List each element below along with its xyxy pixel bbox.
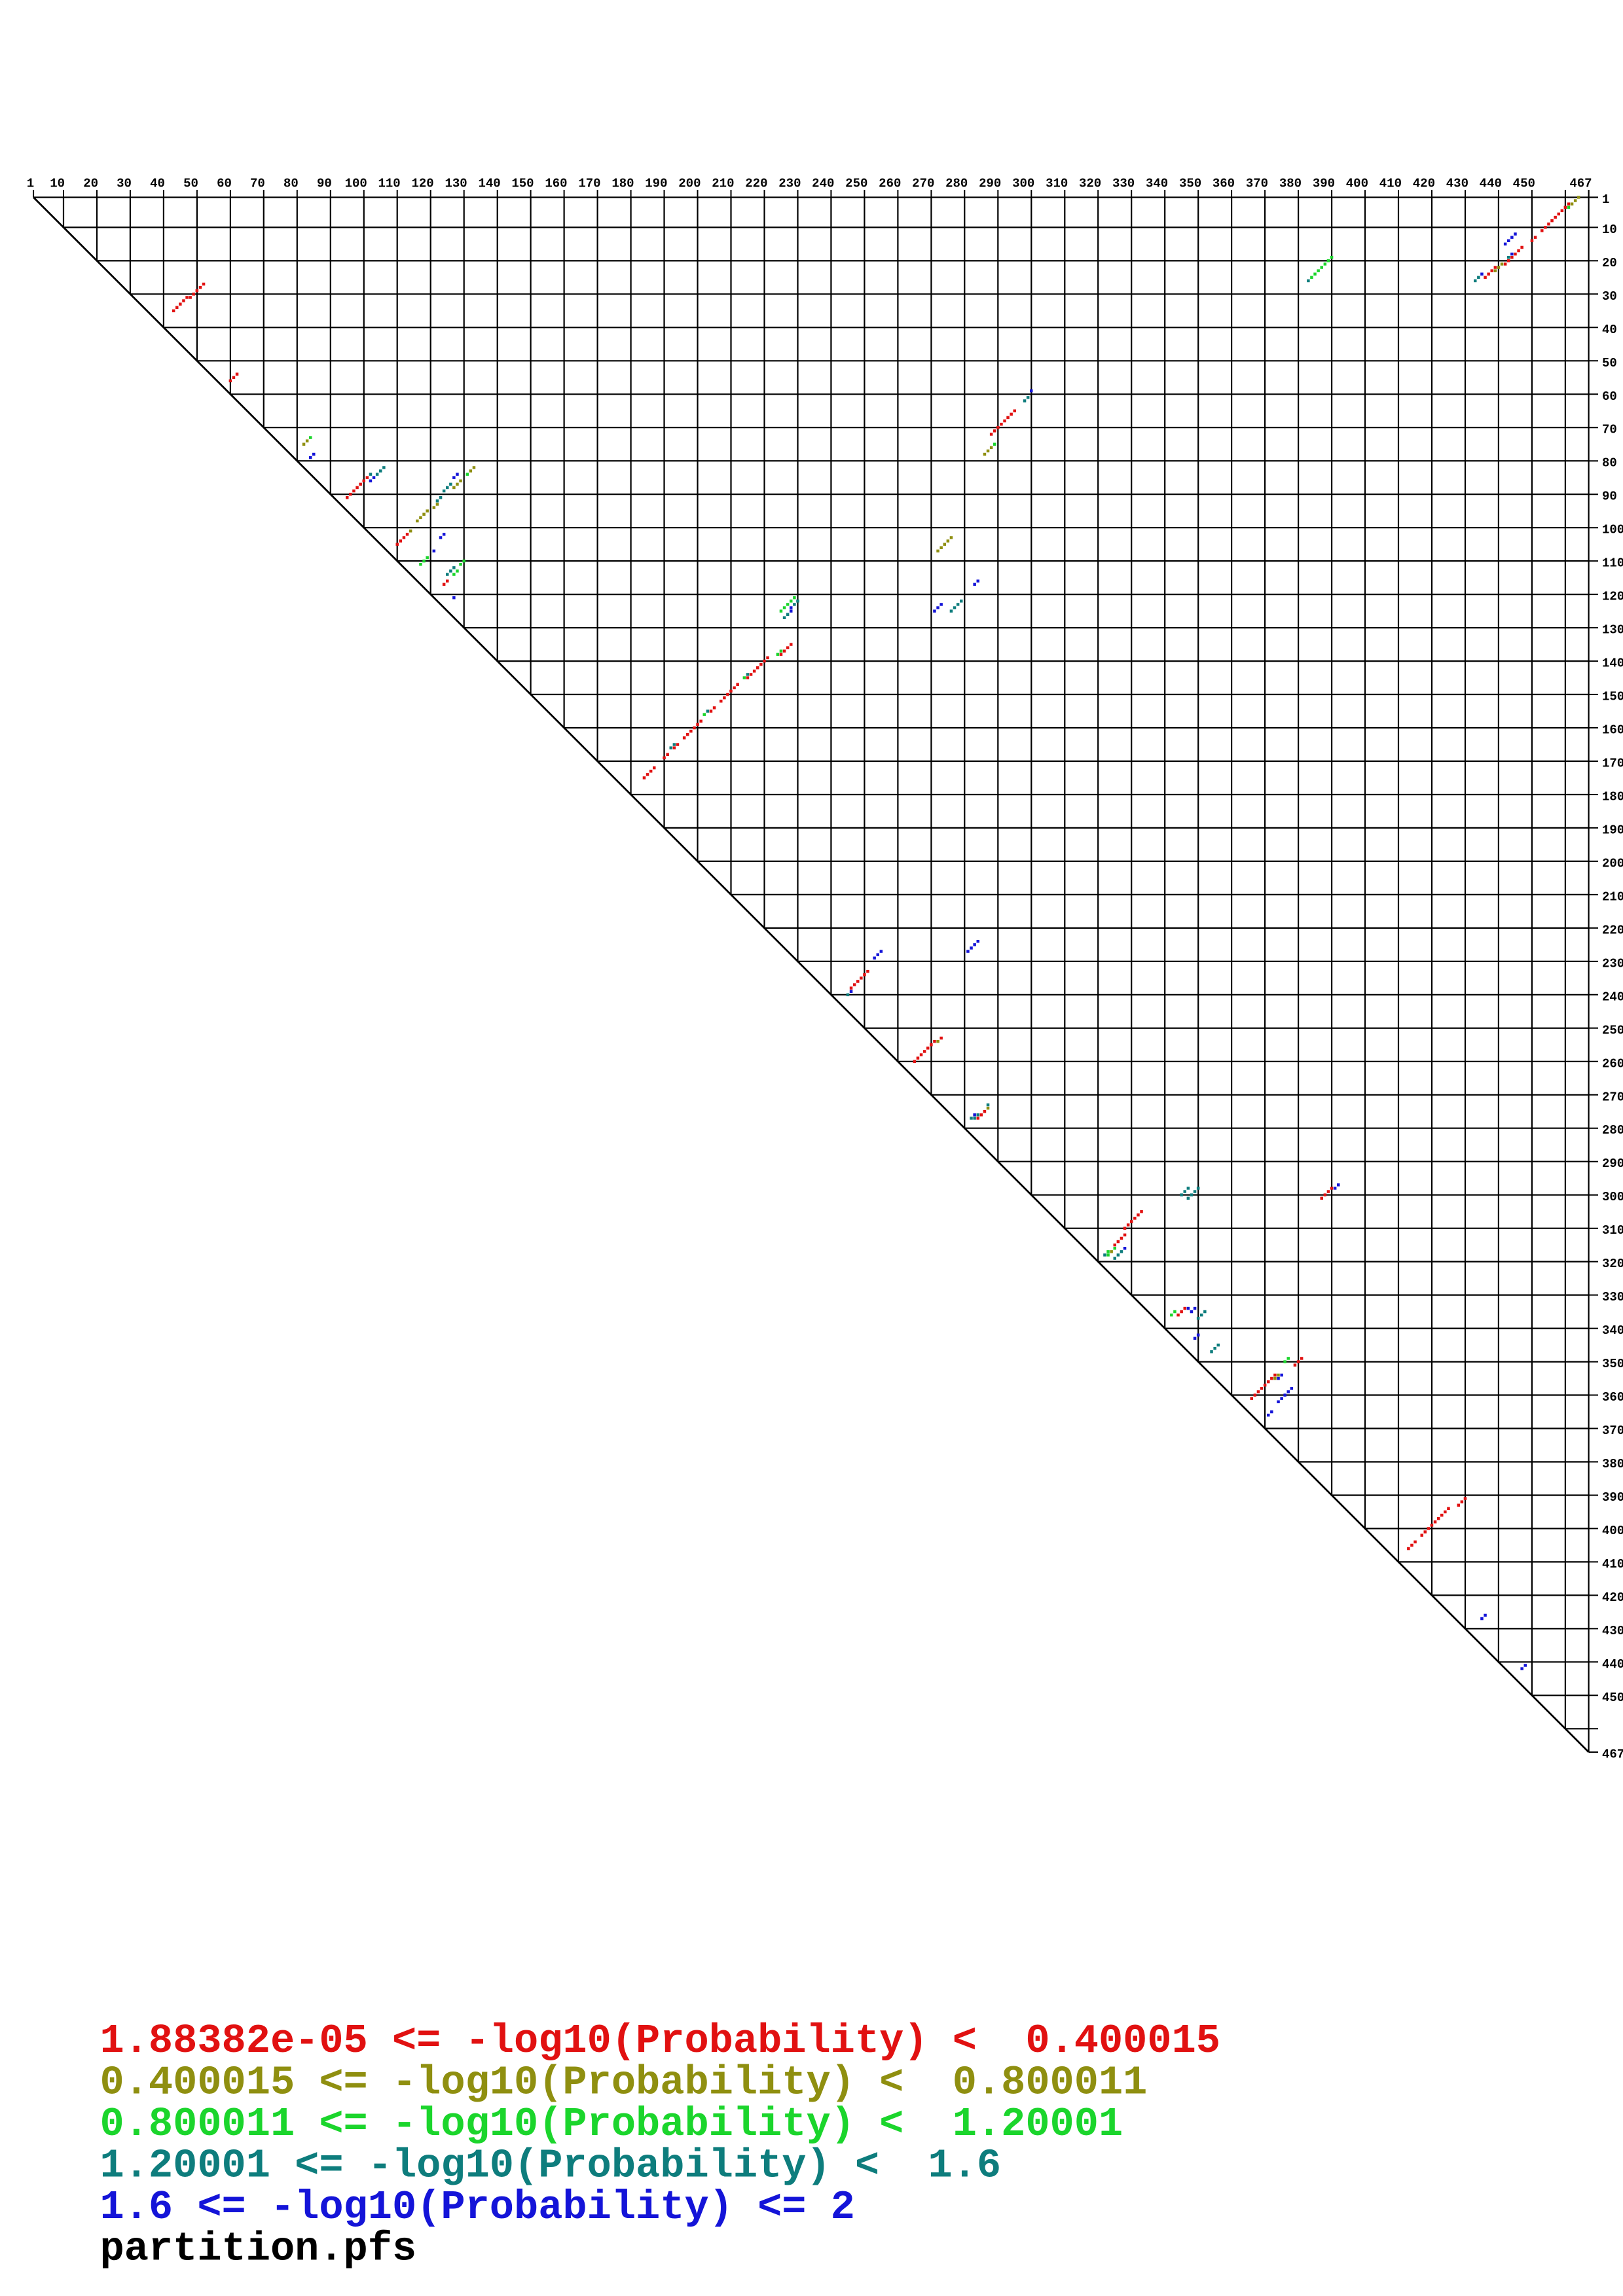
svg-text:100: 100	[345, 177, 367, 191]
svg-text:270: 270	[912, 177, 934, 191]
svg-text:120: 120	[411, 177, 433, 191]
svg-text:110: 110	[1602, 556, 1623, 571]
svg-text:190: 190	[645, 177, 667, 191]
svg-text:140: 140	[478, 177, 500, 191]
svg-text:1.6 <= -log10(Probability) <=: 1.6 <= -log10(Probability) <= 2	[100, 2184, 855, 2231]
svg-text:130: 130	[1602, 623, 1623, 637]
svg-text:420: 420	[1413, 177, 1435, 191]
svg-text:10: 10	[50, 177, 65, 191]
svg-text:390: 390	[1313, 177, 1335, 191]
svg-text:160: 160	[545, 177, 567, 191]
svg-text:300: 300	[1602, 1190, 1623, 1204]
svg-text:290: 290	[1602, 1157, 1623, 1171]
svg-text:450: 450	[1513, 177, 1535, 191]
svg-text:320: 320	[1079, 177, 1101, 191]
svg-text:210: 210	[712, 177, 734, 191]
svg-text:410: 410	[1379, 177, 1402, 191]
svg-text:270: 270	[1602, 1090, 1623, 1104]
svg-text:440: 440	[1480, 177, 1502, 191]
svg-text:170: 170	[1602, 757, 1623, 771]
svg-text:340: 340	[1146, 177, 1168, 191]
svg-text:220: 220	[745, 177, 767, 191]
svg-text:150: 150	[1602, 690, 1623, 704]
svg-text:310: 310	[1602, 1223, 1623, 1238]
svg-text:140: 140	[1602, 656, 1623, 671]
svg-text:350: 350	[1179, 177, 1201, 191]
svg-text:250: 250	[1602, 1023, 1623, 1037]
svg-text:430: 430	[1446, 177, 1468, 191]
svg-text:380: 380	[1279, 177, 1302, 191]
svg-text:450: 450	[1602, 1691, 1623, 1705]
svg-text:250: 250	[845, 177, 867, 191]
svg-text:160: 160	[1602, 723, 1623, 738]
svg-text:120: 120	[1602, 590, 1623, 604]
svg-text:70: 70	[250, 177, 265, 191]
svg-text:110: 110	[378, 177, 400, 191]
svg-text:260: 260	[879, 177, 901, 191]
svg-text:410: 410	[1602, 1557, 1623, 1571]
svg-text:440: 440	[1602, 1657, 1623, 1672]
svg-text:340: 340	[1602, 1323, 1623, 1338]
svg-text:200: 200	[678, 177, 701, 191]
svg-text:230: 230	[1602, 956, 1623, 971]
svg-text:330: 330	[1112, 177, 1135, 191]
svg-text:240: 240	[812, 177, 834, 191]
svg-text:30: 30	[117, 177, 132, 191]
svg-text:1.88382e-05 <= -log10(Probabil: 1.88382e-05 <= -log10(Probability) < 0.4…	[100, 2018, 1220, 2064]
svg-text:210: 210	[1602, 889, 1623, 904]
svg-text:0.800011 <= -log10(Probability: 0.800011 <= -log10(Probability) < 1.2000…	[100, 2101, 1123, 2147]
svg-text:180: 180	[611, 177, 634, 191]
svg-text:60: 60	[1602, 389, 1617, 404]
svg-text:70: 70	[1602, 423, 1617, 437]
svg-text:20: 20	[83, 177, 98, 191]
svg-text:467: 467	[1602, 1748, 1623, 1762]
svg-text:190: 190	[1602, 823, 1623, 837]
svg-text:400: 400	[1602, 1524, 1623, 1538]
svg-text:240: 240	[1602, 990, 1623, 1004]
svg-text:50: 50	[183, 177, 198, 191]
svg-text:1: 1	[1602, 192, 1609, 207]
svg-text:300: 300	[1012, 177, 1034, 191]
svg-text:310: 310	[1046, 177, 1068, 191]
svg-text:0.400015 <= -log10(Probability: 0.400015 <= -log10(Probability) < 0.8000…	[100, 2060, 1148, 2106]
svg-text:370: 370	[1246, 177, 1268, 191]
svg-text:90: 90	[1602, 490, 1617, 504]
svg-text:360: 360	[1602, 1390, 1623, 1405]
svg-text:20: 20	[1602, 256, 1617, 270]
svg-text:290: 290	[979, 177, 1001, 191]
svg-text:230: 230	[778, 177, 801, 191]
svg-text:180: 180	[1602, 790, 1623, 804]
svg-text:30: 30	[1602, 289, 1617, 304]
svg-text:partition.pfs: partition.pfs	[100, 2226, 417, 2272]
svg-text:400: 400	[1346, 177, 1368, 191]
svg-text:467: 467	[1569, 177, 1592, 191]
svg-text:80: 80	[1602, 456, 1617, 471]
svg-text:390: 390	[1602, 1490, 1623, 1505]
svg-text:170: 170	[578, 177, 600, 191]
svg-text:280: 280	[1602, 1123, 1623, 1138]
svg-text:50: 50	[1602, 356, 1617, 370]
svg-text:350: 350	[1602, 1357, 1623, 1371]
svg-text:380: 380	[1602, 1457, 1623, 1471]
svg-text:360: 360	[1213, 177, 1235, 191]
svg-text:90: 90	[317, 177, 332, 191]
svg-text:330: 330	[1602, 1290, 1623, 1304]
svg-text:220: 220	[1602, 923, 1623, 937]
svg-text:370: 370	[1602, 1424, 1623, 1438]
svg-text:100: 100	[1602, 523, 1623, 537]
svg-text:260: 260	[1602, 1056, 1623, 1071]
svg-text:1: 1	[27, 177, 34, 191]
svg-text:200: 200	[1602, 856, 1623, 870]
svg-text:130: 130	[445, 177, 467, 191]
svg-text:420: 420	[1602, 1590, 1623, 1605]
svg-text:280: 280	[945, 177, 968, 191]
svg-text:40: 40	[150, 177, 165, 191]
svg-text:1.20001 <= -log10(Probability): 1.20001 <= -log10(Probability) < 1.6	[100, 2143, 1002, 2189]
svg-text:430: 430	[1602, 1624, 1623, 1638]
svg-text:10: 10	[1602, 223, 1617, 237]
svg-text:40: 40	[1602, 323, 1617, 337]
svg-text:150: 150	[511, 177, 534, 191]
svg-text:60: 60	[217, 177, 232, 191]
svg-text:80: 80	[283, 177, 299, 191]
svg-text:320: 320	[1602, 1257, 1623, 1271]
